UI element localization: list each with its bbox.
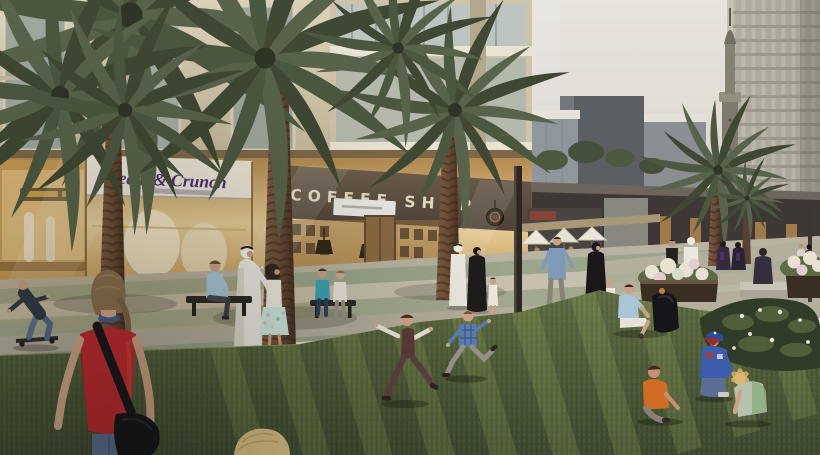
corner-vignette (0, 0, 820, 455)
scene-canvas: Cream & Crunch COFFEE SHOP (0, 0, 820, 455)
render-viewport: Cream & Crunch COFFEE SHOP (0, 0, 820, 455)
